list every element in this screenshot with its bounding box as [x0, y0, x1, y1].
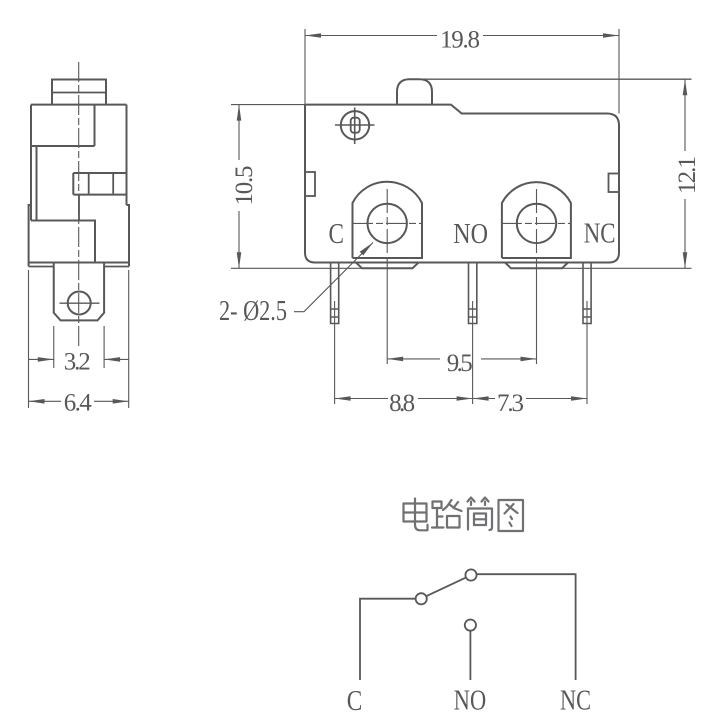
- svg-text:19.8: 19.8: [440, 27, 480, 54]
- svg-text:6.4: 6.4: [64, 389, 93, 416]
- svg-text:NO: NO: [454, 684, 486, 716]
- svg-text:12.1: 12.1: [674, 156, 701, 194]
- svg-text:7.3: 7.3: [497, 390, 524, 417]
- svg-text:9.5: 9.5: [447, 350, 473, 377]
- svg-text:NC: NC: [560, 684, 591, 716]
- svg-text:8.8: 8.8: [389, 390, 415, 417]
- svg-text:NO: NO: [453, 217, 488, 250]
- svg-text:C: C: [347, 685, 362, 717]
- svg-text:2- Ø2.5: 2- Ø2.5: [219, 296, 287, 327]
- svg-text:NC: NC: [584, 217, 616, 249]
- svg-text:3.2: 3.2: [64, 349, 91, 376]
- svg-text:C: C: [329, 218, 344, 250]
- svg-text:10.5: 10.5: [231, 166, 258, 206]
